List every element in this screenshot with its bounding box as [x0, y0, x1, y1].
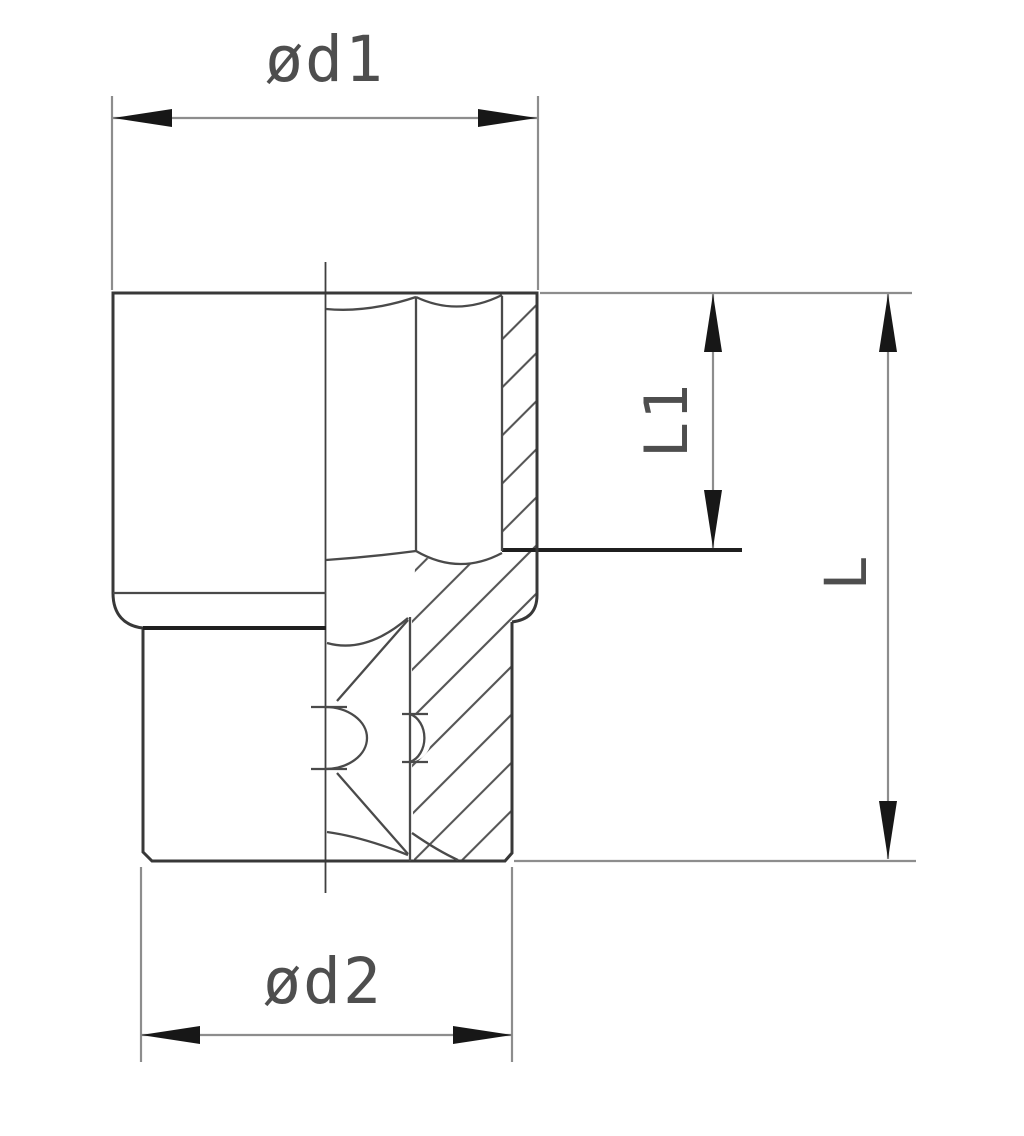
- arrowhead-right-icon: [453, 1026, 512, 1044]
- drawing-canvas: ød1 ød2 L1 L: [0, 0, 1024, 1136]
- dimension-label-d1: ød1: [215, 28, 435, 91]
- arrowhead-left-icon: [141, 1026, 200, 1044]
- dimension-d1: [112, 96, 538, 290]
- arrowhead-left-icon: [113, 109, 172, 127]
- dimension-label-l: L: [817, 462, 875, 682]
- arrowhead-up-icon: [704, 294, 722, 352]
- arrowhead-down-icon: [879, 801, 897, 859]
- section-hatching: [412, 296, 537, 860]
- arrowhead-down-icon: [704, 490, 722, 548]
- arrowhead-right-icon: [478, 109, 537, 127]
- ball-groove-arc: [325, 707, 367, 769]
- ball-hole-arc: [410, 714, 424, 762]
- dimension-label-d2: ød2: [213, 950, 433, 1013]
- dimension-label-l1: L1: [637, 310, 697, 530]
- hex-opening-section: [326, 295, 502, 564]
- arrowhead-up-icon: [879, 294, 897, 352]
